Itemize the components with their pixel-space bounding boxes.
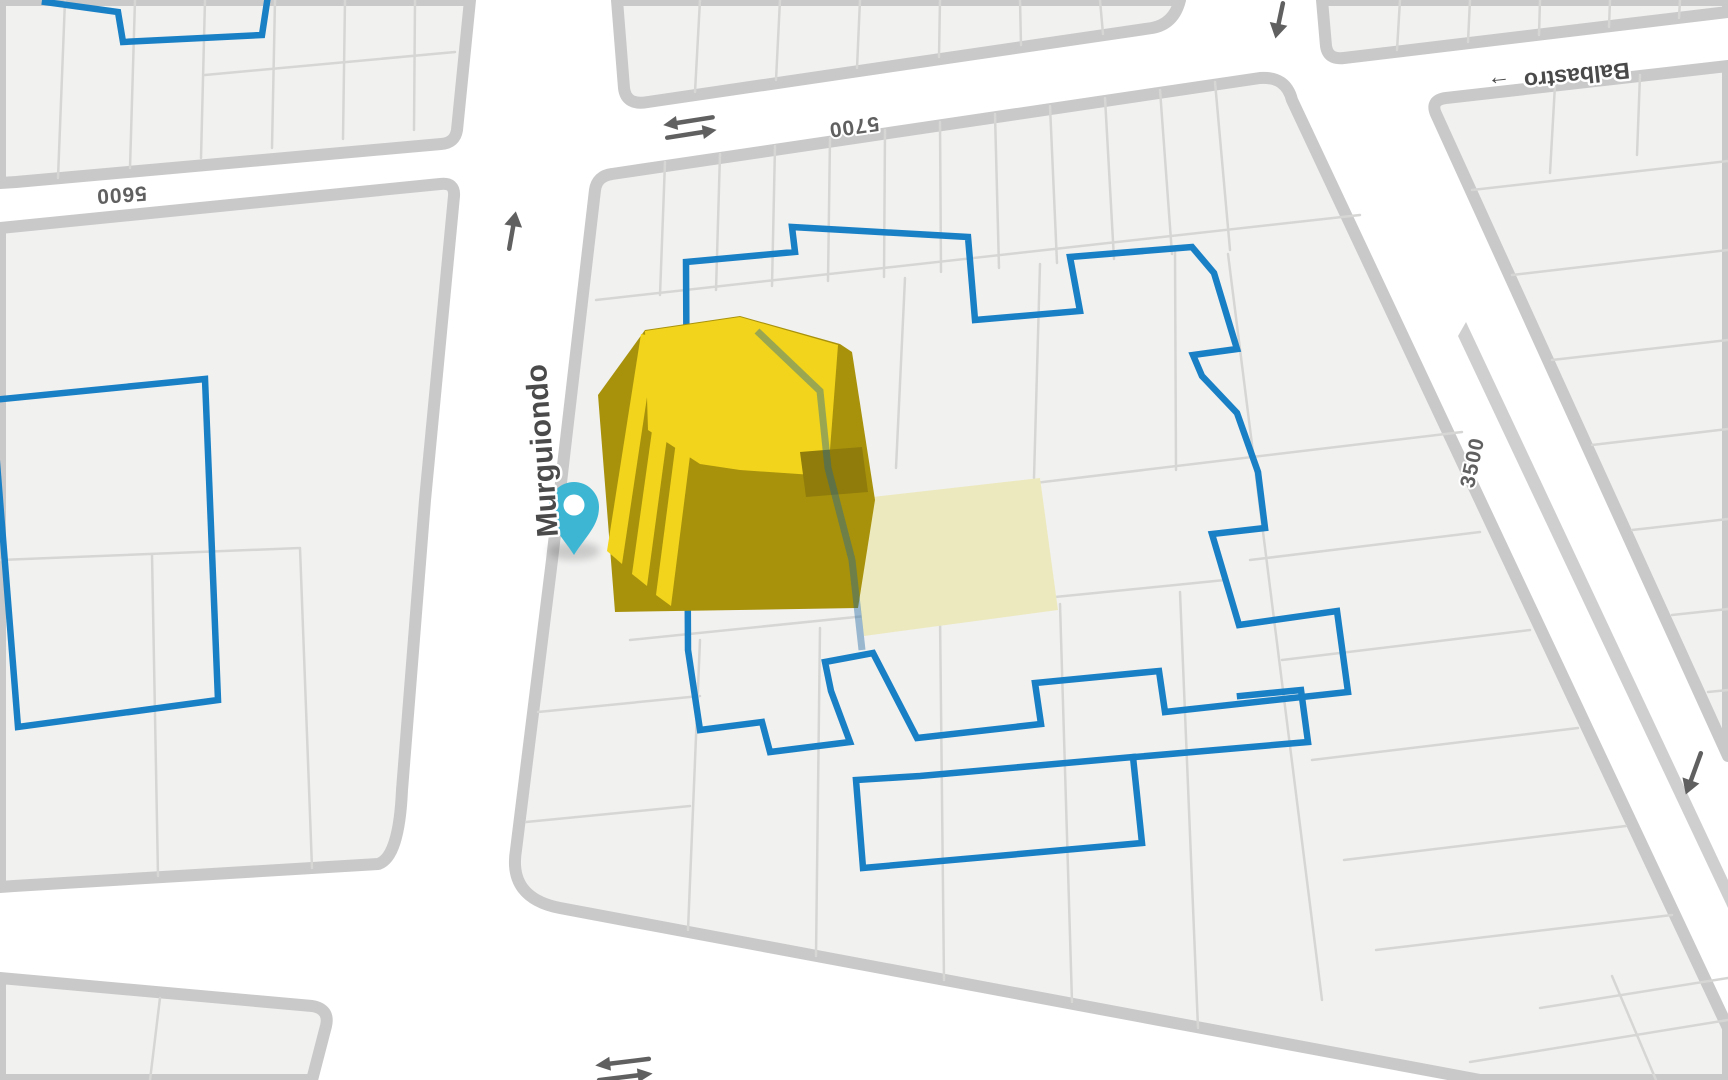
highlighted-parcel[interactable] bbox=[846, 478, 1058, 636]
pin-hole bbox=[564, 495, 585, 516]
map-canvas[interactable]: Murguiondo 5600 5700 3500 Balbastro → bbox=[0, 0, 1728, 1080]
balbastro-oneway-arrow-icon: → bbox=[1487, 70, 1513, 98]
block-number-5600: 5600 bbox=[95, 181, 147, 207]
map-viewport[interactable]: Murguiondo 5600 5700 3500 Balbastro → bbox=[0, 0, 1728, 1080]
block-left-center bbox=[0, 184, 454, 887]
extruded-building[interactable] bbox=[598, 316, 875, 650]
